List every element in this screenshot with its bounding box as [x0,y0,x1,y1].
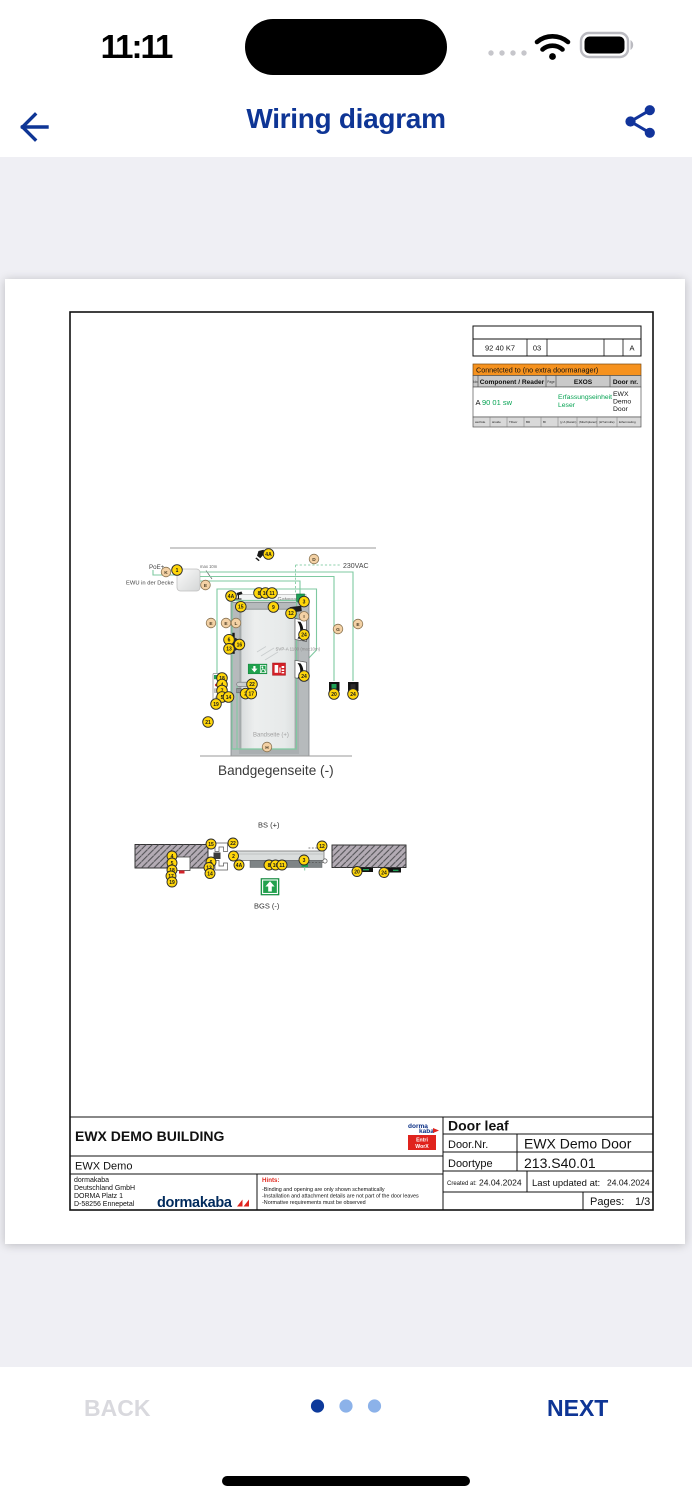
svg-text:19: 19 [169,880,175,886]
svg-text:1/3: 1/3 [635,1196,650,1208]
svg-text:13: 13 [226,647,232,653]
svg-text:12: 12 [288,611,294,617]
svg-text:21: 21 [205,720,211,726]
svg-text:WorX: WorX [415,1144,429,1150]
svg-text:24.04.2024: 24.04.2024 [607,1178,650,1188]
svg-text:dormakaba: dormakaba [74,1177,109,1184]
svg-text:6: 6 [228,638,231,644]
svg-text:Hints:: Hints: [262,1177,280,1184]
svg-text:92 40 K7: 92 40 K7 [485,344,515,353]
svg-text:20: 20 [354,869,360,875]
svg-text:A: A [476,398,481,407]
svg-text:14: 14 [207,871,213,877]
svg-text:Connetcted to (no extra doorma: Connetcted to (no extra doormanager) [476,366,598,375]
svg-text:24: 24 [301,633,307,639]
svg-text:L: L [235,621,238,627]
svg-text:SVP-A 1100 (max10m): SVP-A 1100 (max10m) [276,647,321,652]
svg-text:Pages:: Pages: [590,1196,624,1208]
svg-text:Door leaf: Door leaf [448,1118,509,1134]
svg-text:Entri: Entri [416,1138,428,1144]
svg-text:EWX: EWX [613,391,629,398]
svg-text:15: 15 [238,605,244,611]
svg-text:3: 3 [303,600,306,606]
svg-text:Bandseite (+): Bandseite (+) [253,733,289,739]
svg-text:14: 14 [226,695,232,701]
svg-text:EWX DEMO BUILDING: EWX DEMO BUILDING [75,1128,224,1144]
svg-text:Door nr.: Door nr. [613,379,638,386]
svg-text:4A: 4A [265,552,272,558]
svg-text:(kiTurnstile): (kiTurnstile) [599,420,615,424]
svg-text:BGS (-): BGS (-) [254,902,280,911]
svg-text:230VAC: 230VAC [343,563,369,570]
svg-text:11: 11 [279,863,285,869]
svg-text:K: K [164,570,168,576]
svg-text:D-58256 Ennepetal: D-58256 Ennepetal [74,1201,135,1208]
svg-text:Page: Page [547,380,555,384]
svg-text:15: 15 [208,842,214,848]
svg-text:22: 22 [230,841,236,847]
svg-text:20: 20 [331,692,337,698]
svg-text:4A: 4A [236,863,243,869]
svg-text:11: 11 [269,591,275,597]
svg-text:90 01 sw: 90 01 sw [482,398,513,407]
svg-text:24: 24 [381,870,387,876]
svg-text:22: 22 [249,682,255,688]
svg-text:(Mischplaner): (Mischplaner) [579,420,597,424]
svg-text:H: H [265,745,269,751]
svg-text:2: 2 [232,854,235,860]
svg-text:Deutschland GmbH: Deutschland GmbH [74,1185,135,1192]
svg-text:A: A [629,344,634,353]
svg-text:(y:A (Dwain): (y:A (Dwain) [560,420,576,424]
svg-text:Last updated at:: Last updated at: [532,1178,600,1189]
svg-text:kaba: kaba [419,1128,434,1135]
svg-text:-Installation and attachment d: -Installation and attachment details are… [262,1194,419,1200]
svg-text:Door: Door [613,406,628,413]
svg-text:24.04.2024: 24.04.2024 [479,1178,522,1188]
svg-text:Created at:: Created at: [447,1181,477,1187]
svg-text:3: 3 [303,858,306,864]
svg-text:16: 16 [237,642,243,648]
svg-text:max 10m: max 10m [200,564,218,569]
svg-text:4A: 4A [228,594,235,600]
svg-text:aschide: aschide [475,420,486,424]
svg-text:Idx: Idx [473,380,478,384]
svg-text:änside: änside [492,420,501,424]
svg-text:EWU in der Decke: EWU in der Decke [126,581,174,587]
svg-text:Ethernceling: Ethernceling [619,420,636,424]
svg-text:Component / Reader: Component / Reader [480,379,545,386]
svg-text:Demo: Demo [613,399,631,406]
svg-text:dormakaba: dormakaba [157,1195,233,1211]
svg-text:213.S40.01: 213.S40.01 [524,1155,596,1171]
svg-text:17: 17 [249,692,255,698]
svg-text:BS (+): BS (+) [258,821,280,830]
svg-text:Gateway: Gateway [278,597,300,603]
svg-text:Erfassungseinheit: Erfassungseinheit [558,394,612,401]
svg-text:EWX Demo: EWX Demo [75,1161,132,1173]
svg-text:9: 9 [272,605,275,611]
svg-text:G: G [336,627,340,633]
svg-text:24: 24 [301,674,307,680]
svg-text:Leser: Leser [558,402,576,409]
svg-text:03: 03 [533,344,541,353]
svg-text:Bandgegenseite (-): Bandgegenseite (-) [218,763,334,778]
svg-text:-Binding and opening are only: -Binding and opening are only shown sche… [262,1187,385,1193]
svg-text:Doortype: Doortype [448,1158,493,1170]
svg-text:12: 12 [319,844,325,850]
svg-text:-Normative requirements must b: -Normative requirements must be observed [262,1200,366,1206]
svg-text:TDoor: TDoor [509,420,517,424]
svg-text:D: D [312,557,316,563]
svg-text:EWX Demo Door: EWX Demo Door [524,1136,632,1152]
svg-text:24: 24 [350,692,356,698]
svg-text:19: 19 [213,702,219,708]
svg-text:EXOS: EXOS [574,379,593,386]
svg-text:BI: BI [543,420,546,424]
svg-text:1: 1 [176,568,179,574]
svg-text:DORMA Platz 1: DORMA Platz 1 [74,1193,123,1200]
svg-text:Door.Nr.: Door.Nr. [448,1139,488,1151]
